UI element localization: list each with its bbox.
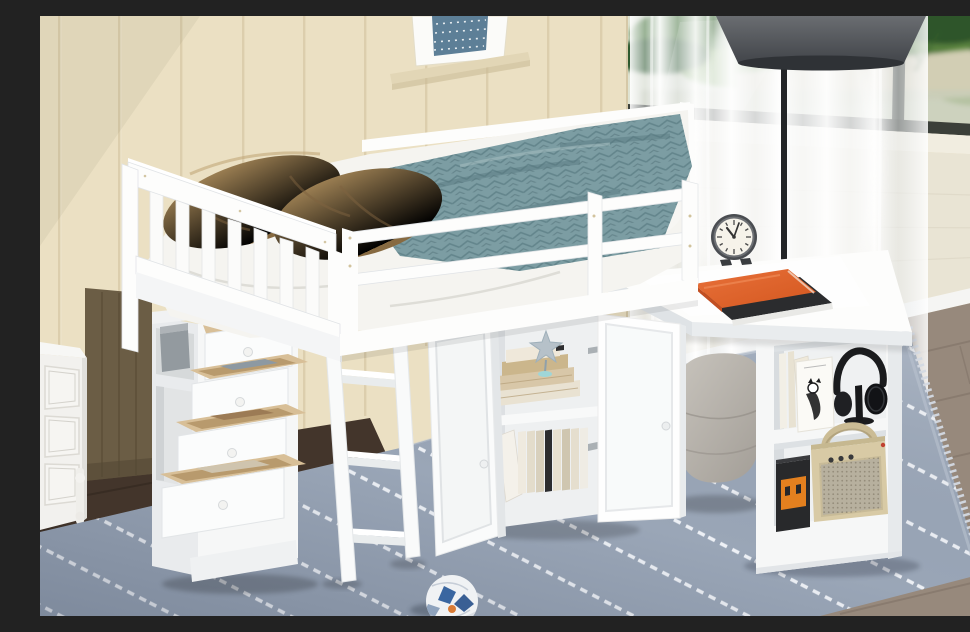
scene-canvas bbox=[40, 16, 970, 616]
guard-rail-left-post bbox=[342, 228, 358, 346]
portable-speaker bbox=[811, 426, 888, 522]
lamp-pole bbox=[781, 62, 787, 260]
robot-face bbox=[781, 476, 806, 510]
side-bookcase bbox=[744, 316, 920, 577]
drawer-4-knob bbox=[219, 501, 228, 510]
drawer-2-knob bbox=[236, 398, 245, 407]
drawer-1-knob bbox=[244, 348, 253, 357]
art-canvas bbox=[432, 16, 488, 56]
drawer-3-knob bbox=[228, 449, 237, 458]
storage-cabinet bbox=[428, 308, 686, 556]
left-door-knob bbox=[480, 460, 488, 468]
storage-box bbox=[160, 330, 190, 372]
product-photo: White twin loft bed with storage: four o… bbox=[40, 16, 970, 616]
wardrobe bbox=[85, 288, 152, 481]
cabinet-door-left bbox=[428, 322, 506, 556]
right-door-knob bbox=[662, 422, 670, 430]
nightstand bbox=[40, 342, 92, 538]
cabinet-interior bbox=[495, 308, 602, 528]
cabinet-door-right bbox=[598, 314, 686, 522]
lamp-shade-rim bbox=[738, 56, 904, 71]
toy-robot bbox=[776, 455, 810, 532]
guard-rail-mid-post bbox=[588, 192, 602, 302]
guard-rail-end-post bbox=[682, 180, 698, 284]
nightstand-drawers bbox=[45, 366, 79, 505]
